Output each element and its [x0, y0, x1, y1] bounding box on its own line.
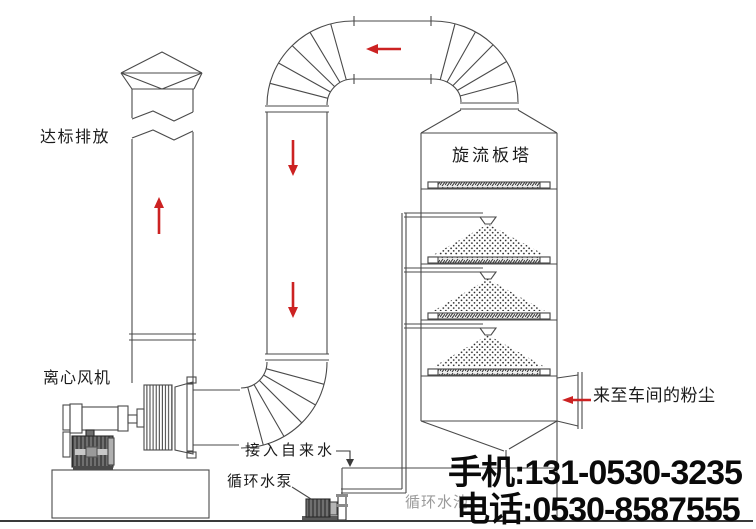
- swirl-plate-1: [421, 182, 557, 189]
- fan-inlet-duct: [187, 384, 240, 451]
- upper-right-elbow-duct: [433, 21, 518, 102]
- rain-cap-icon: [121, 52, 202, 89]
- tower-label: 旋流板塔: [452, 147, 532, 164]
- tap-water-label: 接入自来水: [245, 443, 335, 458]
- down-arrow-icon: [346, 459, 354, 467]
- phone-number: 电话:0530-8587555: [456, 482, 740, 529]
- flow-arrow-left-icon: [366, 44, 401, 54]
- spray-nozzle-icon: [480, 328, 496, 335]
- spray-branch-1: [404, 213, 496, 224]
- upper-left-elbow-duct: [267, 21, 353, 105]
- tap-water-line: [336, 451, 354, 467]
- spray-branch-2: [404, 268, 496, 279]
- fan-impeller: [144, 385, 172, 450]
- spray-nozzle-icon: [480, 272, 496, 279]
- dust-inlet-label: 来至车间的粉尘: [593, 387, 716, 404]
- fan-label: 离心风机: [43, 371, 111, 387]
- swirl-plate-4: [421, 369, 557, 376]
- spray-cone-2: [433, 279, 545, 311]
- chimney-stack: [121, 52, 202, 383]
- flow-arrows: [154, 44, 591, 404]
- flow-arrow-up-icon: [154, 197, 164, 234]
- centrifugal-fan: [52, 377, 209, 518]
- flow-arrow-down-icon: [288, 282, 298, 318]
- tower-top-transition: [421, 110, 557, 133]
- spray-branch-3: [404, 324, 496, 335]
- fan-base-pedestal: [52, 470, 209, 518]
- inlet-arrow-left-icon: [562, 396, 591, 404]
- spray-cone-3: [433, 335, 545, 367]
- descending-duct: [265, 106, 329, 354]
- tower-top-flange: [460, 103, 519, 109]
- swirl-plate-2: [421, 257, 557, 264]
- process-diagram: 达标排放 离心风机 旋流板塔 来至车间的粉尘 接入自来水 循环水泵 循环水池 手…: [0, 0, 756, 529]
- pump-label-pointer: [292, 487, 311, 499]
- spray-cone-1: [433, 224, 545, 255]
- swirl-plate-3: [421, 313, 557, 320]
- flow-arrow-down-icon: [288, 140, 298, 176]
- lower-elbow-duct: [241, 354, 329, 448]
- pump-label: 循环水泵: [227, 474, 293, 489]
- emission-label: 达标排放: [40, 130, 110, 146]
- spray-nozzle-icon: [480, 217, 496, 224]
- spray-riser-pipe: [402, 213, 406, 493]
- bearing-housing: [70, 404, 82, 433]
- fan-motor-icon: [72, 430, 114, 470]
- stack-break-symbol: [132, 111, 193, 140]
